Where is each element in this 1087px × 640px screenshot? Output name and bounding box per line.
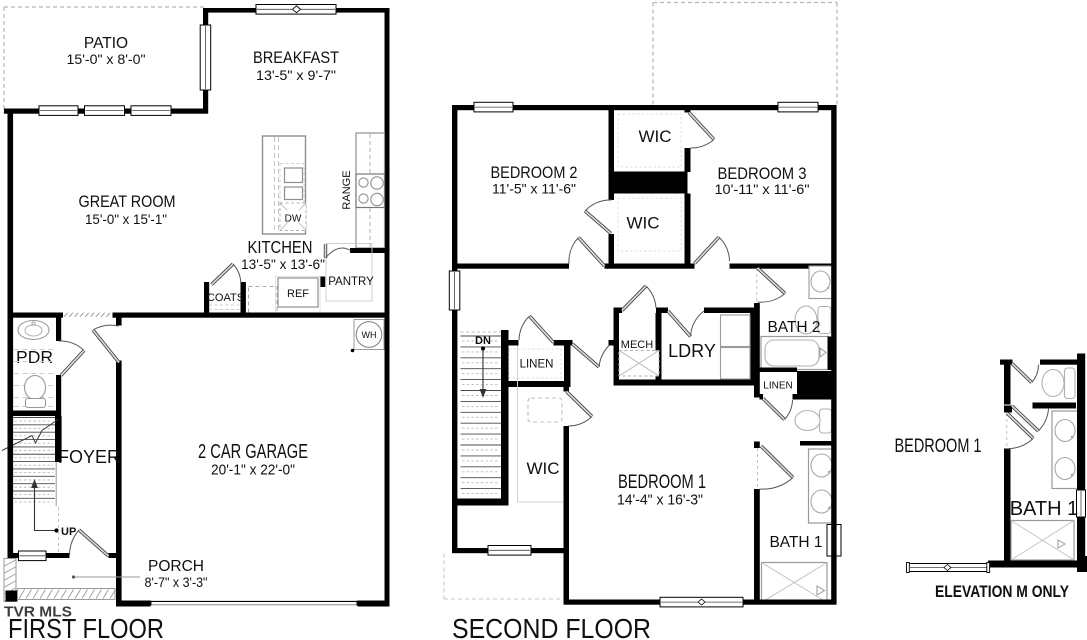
svg-text:15'-0" x 15'-1": 15'-0" x 15'-1" <box>85 211 167 227</box>
svg-text:GREAT ROOM: GREAT ROOM <box>79 192 176 211</box>
svg-text:PANTRY: PANTRY <box>328 276 374 288</box>
svg-text:SECOND FLOOR: SECOND FLOOR <box>452 613 651 640</box>
svg-text:BEDROOM 1: BEDROOM 1 <box>895 435 982 457</box>
svg-text:2 CAR GARAGE: 2 CAR GARAGE <box>198 441 308 463</box>
svg-text:PORCH: PORCH <box>148 558 204 575</box>
svg-text:8'-7" x 3'-3": 8'-7" x 3'-3" <box>145 575 208 590</box>
svg-text:FOYER: FOYER <box>58 447 120 467</box>
svg-text:LDRY: LDRY <box>668 341 716 361</box>
svg-text:10'-11" x 11'-6": 10'-11" x 11'-6" <box>715 181 810 197</box>
svg-text:ELEVATION M ONLY: ELEVATION M ONLY <box>935 583 1069 601</box>
svg-text:BATH 1: BATH 1 <box>769 534 822 551</box>
svg-text:LINEN: LINEN <box>763 381 792 392</box>
svg-text:BEDROOM 2: BEDROOM 2 <box>491 163 578 182</box>
svg-text:DW: DW <box>285 214 302 225</box>
svg-text:LINEN: LINEN <box>520 359 554 371</box>
svg-text:REF: REF <box>287 288 309 300</box>
svg-text:BEDROOM 1: BEDROOM 1 <box>618 471 706 493</box>
svg-text:13'-5" x 9'-7": 13'-5" x 9'-7" <box>256 67 336 83</box>
svg-text:WH: WH <box>362 330 377 340</box>
svg-text:WIC: WIC <box>626 214 659 233</box>
svg-text:PDR: PDR <box>16 347 53 367</box>
svg-text:BREAKFAST: BREAKFAST <box>253 48 339 67</box>
svg-text:BATH 1: BATH 1 <box>1010 498 1079 520</box>
svg-text:COATS: COATS <box>207 292 244 304</box>
svg-text:PATIO: PATIO <box>84 35 128 52</box>
svg-text:RANGE: RANGE <box>341 170 353 209</box>
svg-text:KITCHEN: KITCHEN <box>248 237 313 257</box>
svg-text:13'-5" x 13'-6": 13'-5" x 13'-6" <box>241 256 325 272</box>
svg-text:MECH: MECH <box>621 339 653 351</box>
svg-text:BATH 2: BATH 2 <box>767 319 820 336</box>
svg-text:WIC: WIC <box>638 127 671 146</box>
svg-text:WIC: WIC <box>526 459 559 478</box>
svg-text:DN: DN <box>475 335 491 347</box>
svg-text:11'-5" x 11'-6": 11'-5" x 11'-6" <box>492 181 576 197</box>
svg-text:15'-0" x 8'-0": 15'-0" x 8'-0" <box>67 52 146 67</box>
svg-text:FIRST FLOOR: FIRST FLOOR <box>8 613 164 640</box>
svg-text:14'-4" x 16'-3": 14'-4" x 16'-3" <box>617 492 703 509</box>
svg-text:20'-1" x 22'-0": 20'-1" x 22'-0" <box>211 462 295 479</box>
